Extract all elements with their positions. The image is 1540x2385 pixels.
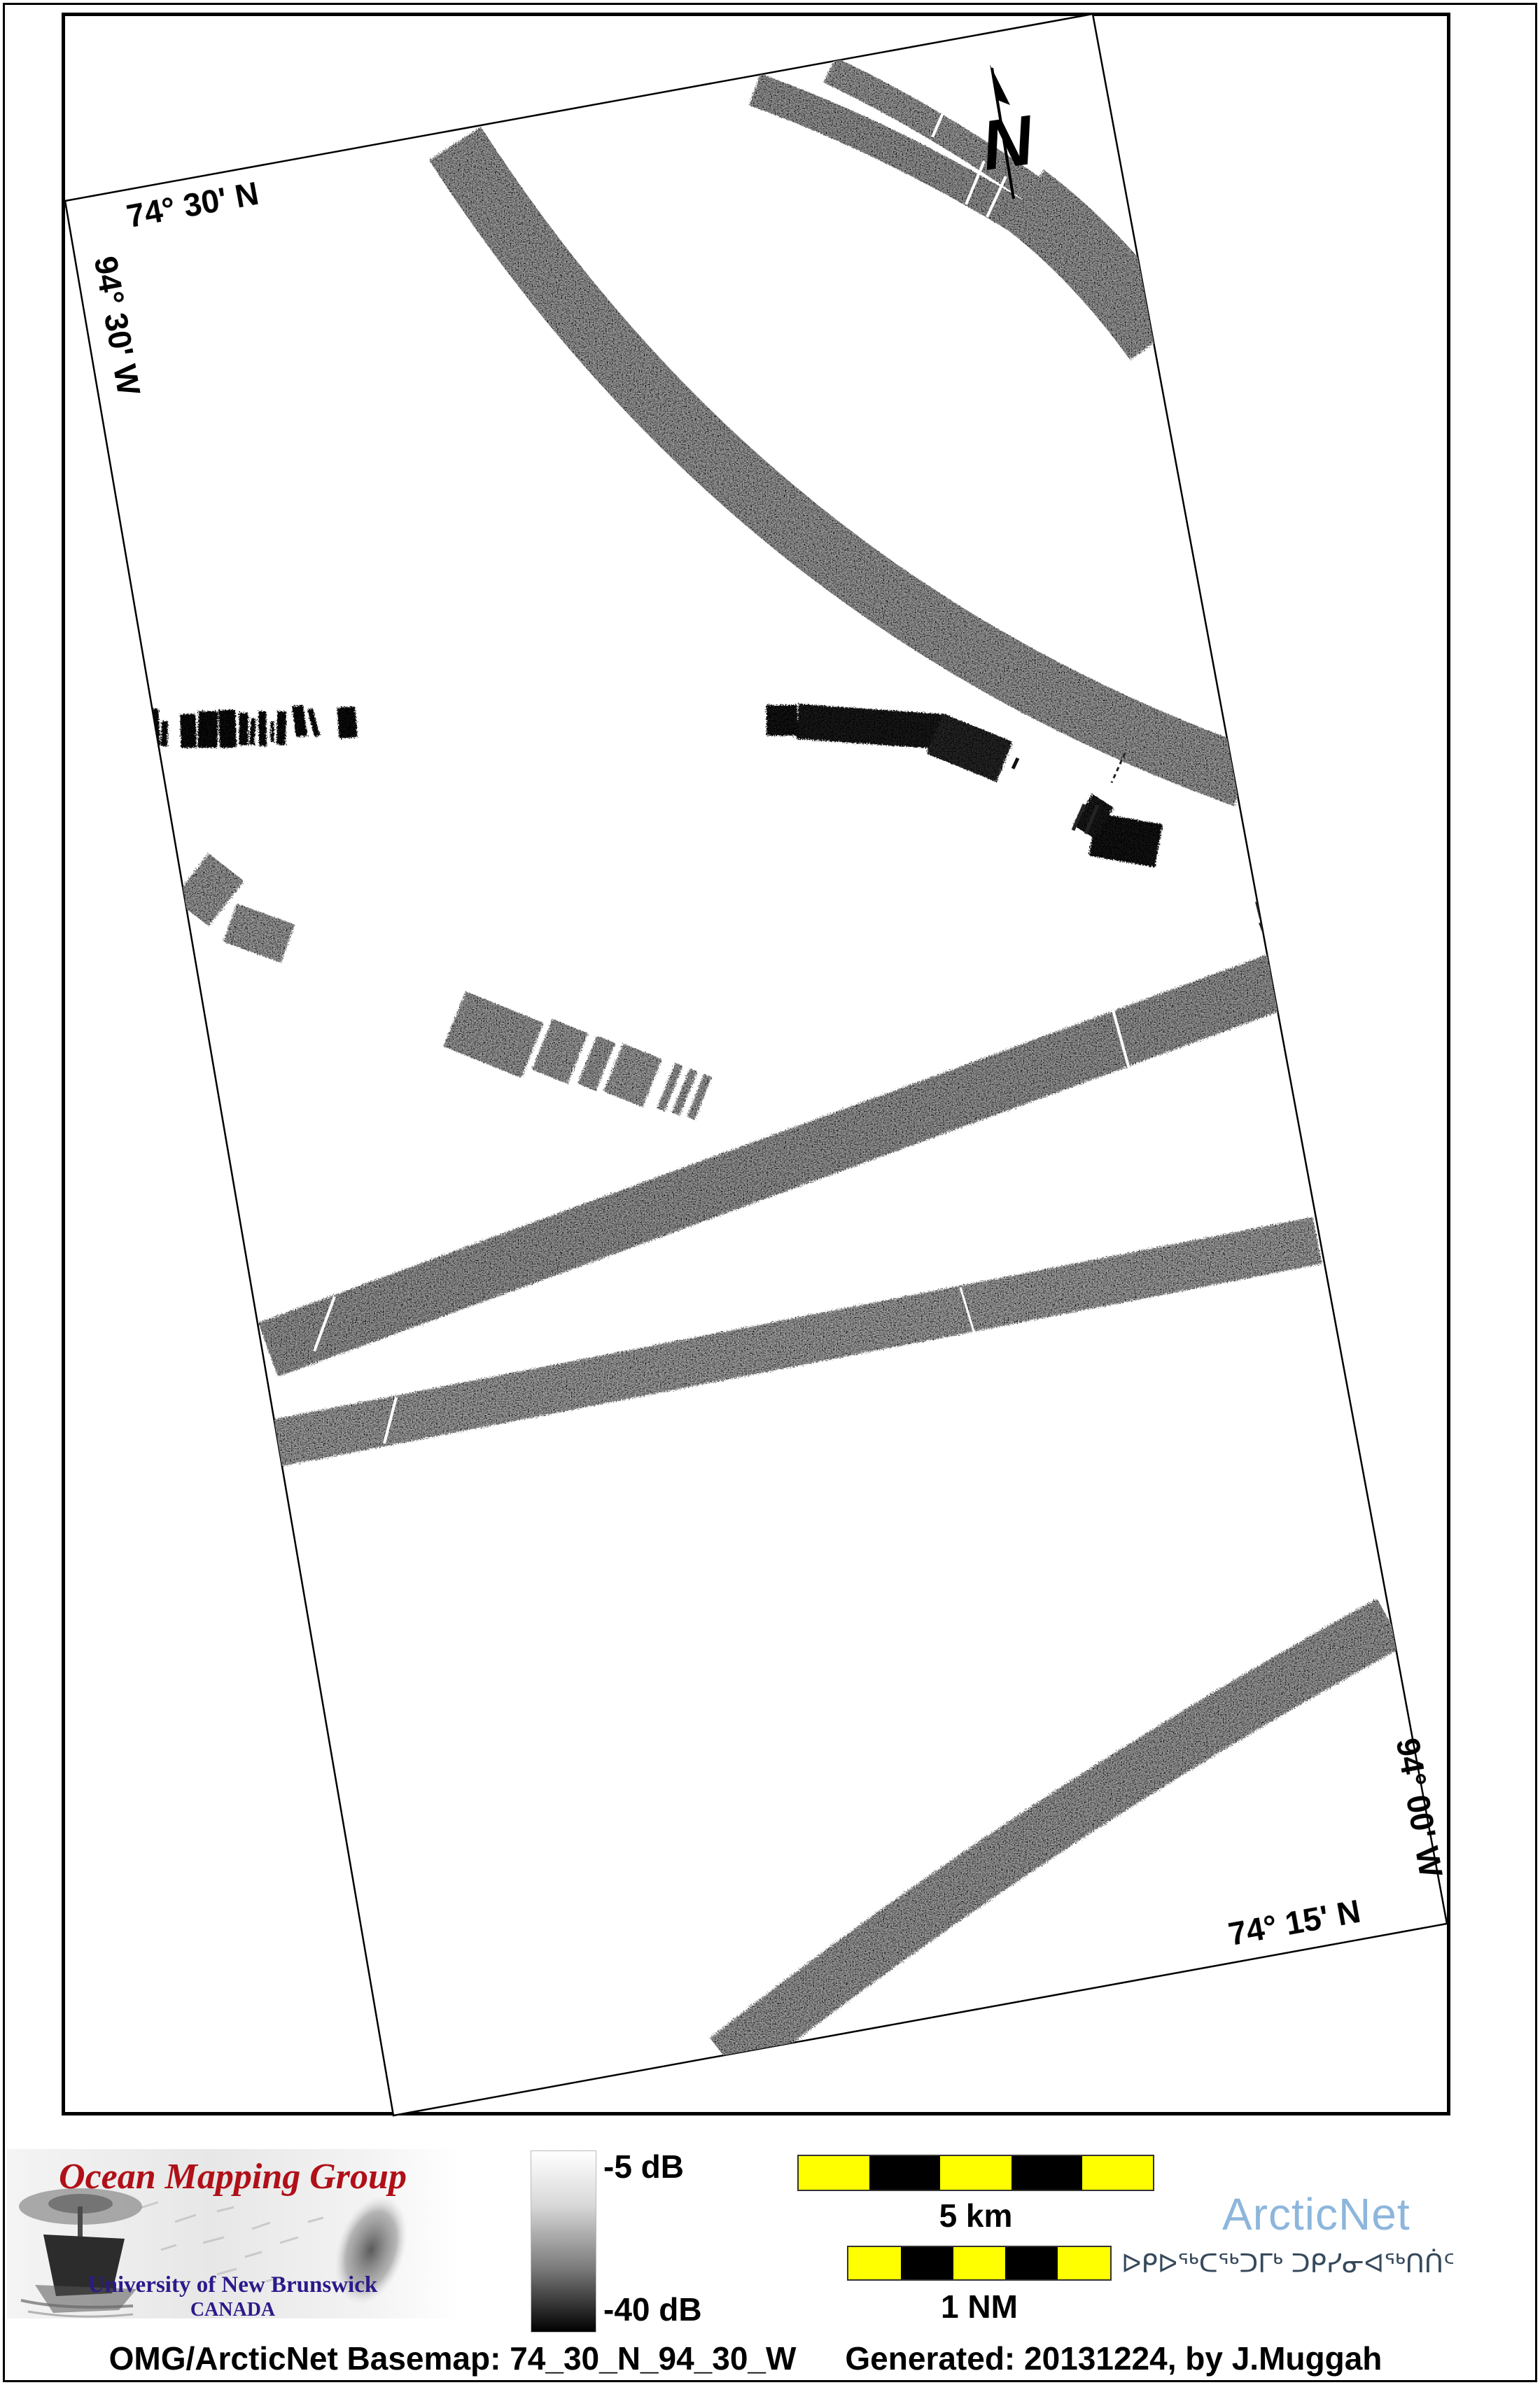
sonar-patch — [239, 713, 248, 745]
scalebar-cell — [848, 2247, 901, 2279]
sonar-patch — [180, 714, 197, 748]
sonar-patch — [271, 721, 274, 742]
scalebar-km — [797, 2155, 1154, 2191]
sonar-patch — [161, 721, 168, 746]
logo-title: Ocean Mapping Group — [7, 2156, 458, 2197]
colorbar-max-label: -5 dB — [603, 2148, 684, 2185]
backscatter-colorbar — [531, 2150, 596, 2332]
scalebar-km-label: 5 km — [797, 2197, 1154, 2234]
map-svg: N 74° 30' N94° 30' W94° 00' W74° 15' N — [0, 0, 1540, 2385]
basemap-caption: OMG/ArcticNet Basemap: 74_30_N_94_30_W G… — [0, 2339, 1491, 2377]
scalebar-cell — [1005, 2247, 1058, 2279]
omg-logo: Ocean Mapping Group University of New Br… — [7, 2145, 458, 2323]
arcticnet-wordmark: ArcticNet — [1222, 2188, 1410, 2240]
scalebar-cell — [1082, 2156, 1153, 2190]
scalebar-cell — [1011, 2156, 1082, 2190]
logo-country: CANADA — [7, 2299, 458, 2321]
scalebar-nm-label: 1 NM — [847, 2288, 1112, 2325]
sonar-patch — [198, 711, 218, 748]
caption-basemap-id: OMG/ArcticNet Basemap: 74_30_N_94_30_W — [109, 2339, 797, 2377]
sonar-patch — [218, 710, 237, 748]
logo-subtitle: University of New Brunswick — [7, 2272, 458, 2298]
survey-boundary-quad — [65, 14, 1447, 2115]
sonar-patch — [337, 706, 357, 739]
scalebar-cell — [901, 2247, 953, 2279]
scalebar-cell — [953, 2247, 1006, 2279]
scalebar-nm — [847, 2246, 1112, 2281]
sonar-patch — [766, 705, 797, 736]
basemap-page: { "page": {"width": 2200, "height": 3407… — [0, 0, 1540, 2385]
scalebar-cell — [940, 2156, 1011, 2190]
caption-generated: Generated: 20131224, by J.Muggah — [845, 2339, 1382, 2377]
arcticnet-inuktitut: ᐅᑭᐅᖅᑕᖅᑐᒥᒃ ᑐᑭᓯᓂᐊᖅᑎᑏᑦ — [1121, 2248, 1455, 2279]
legend-strip: Ocean Mapping Group University of New Br… — [0, 2121, 1540, 2359]
sonar-patch — [276, 711, 287, 745]
scalebar-cell — [869, 2156, 940, 2190]
sonar-patch — [258, 711, 267, 746]
scalebar-cell — [1058, 2247, 1110, 2279]
scalebar-cell — [799, 2156, 869, 2190]
colorbar-min-label: -40 dB — [603, 2290, 702, 2328]
